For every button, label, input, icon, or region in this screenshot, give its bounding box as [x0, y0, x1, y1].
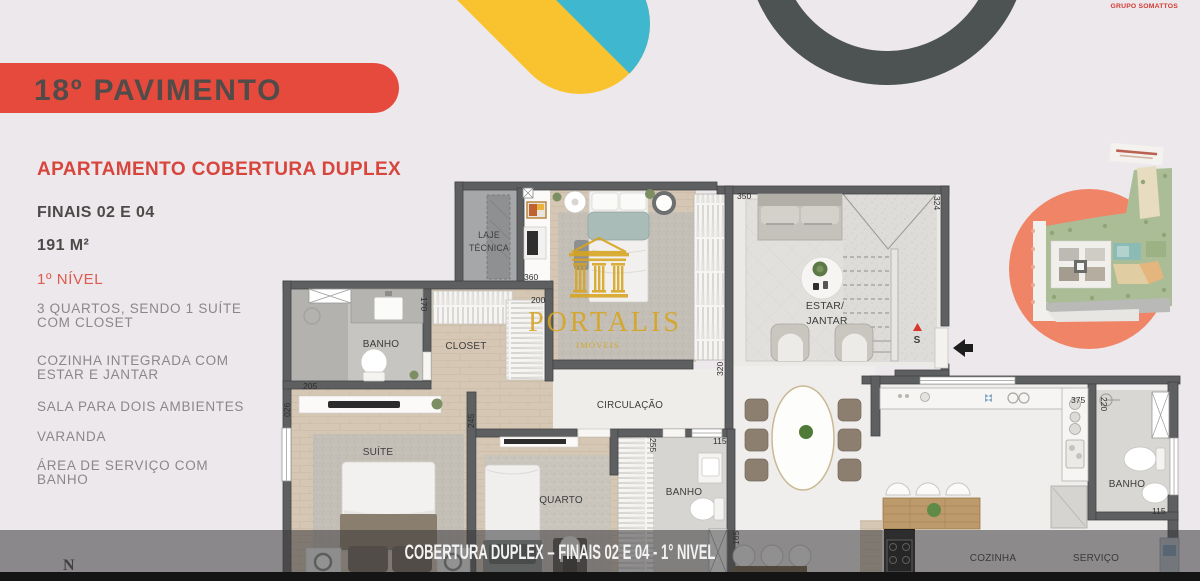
svg-text:CLOSET: CLOSET	[445, 341, 486, 352]
svg-text:ESTAR/: ESTAR/	[806, 300, 844, 312]
svg-text:320: 320	[715, 362, 725, 376]
svg-text:S: S	[914, 335, 921, 346]
svg-text:115: 115	[713, 436, 727, 446]
svg-text:CIRCULAÇÃO: CIRCULAÇÃO	[597, 400, 663, 411]
svg-text:IMÓVEIS: IMÓVEIS	[576, 340, 620, 350]
svg-text:QUARTO: QUARTO	[539, 495, 583, 506]
svg-text:JANTAR: JANTAR	[806, 315, 847, 327]
svg-text:115: 115	[1152, 506, 1166, 516]
svg-text:LAJE: LAJE	[478, 230, 500, 240]
svg-text:026: 026	[282, 403, 292, 417]
svg-text:205: 205	[303, 381, 317, 391]
svg-text:350: 350	[737, 191, 751, 201]
svg-text:BANHO: BANHO	[1109, 479, 1146, 490]
svg-text:324: 324	[932, 196, 942, 210]
svg-text:375: 375	[1071, 395, 1085, 405]
svg-text:245: 245	[466, 414, 476, 428]
svg-text:170: 170	[419, 297, 429, 311]
svg-text:200: 200	[531, 295, 545, 305]
svg-text:PORTALIS: PORTALIS	[528, 307, 682, 338]
svg-text:BANHO: BANHO	[363, 339, 400, 350]
svg-text:BANHO: BANHO	[666, 487, 703, 498]
svg-text:TÉCNICA: TÉCNICA	[469, 243, 509, 253]
svg-text:255: 255	[648, 438, 658, 452]
svg-text:SUÍTE: SUÍTE	[363, 445, 394, 458]
svg-text:220: 220	[1099, 397, 1109, 411]
svg-text:360: 360	[524, 272, 538, 282]
